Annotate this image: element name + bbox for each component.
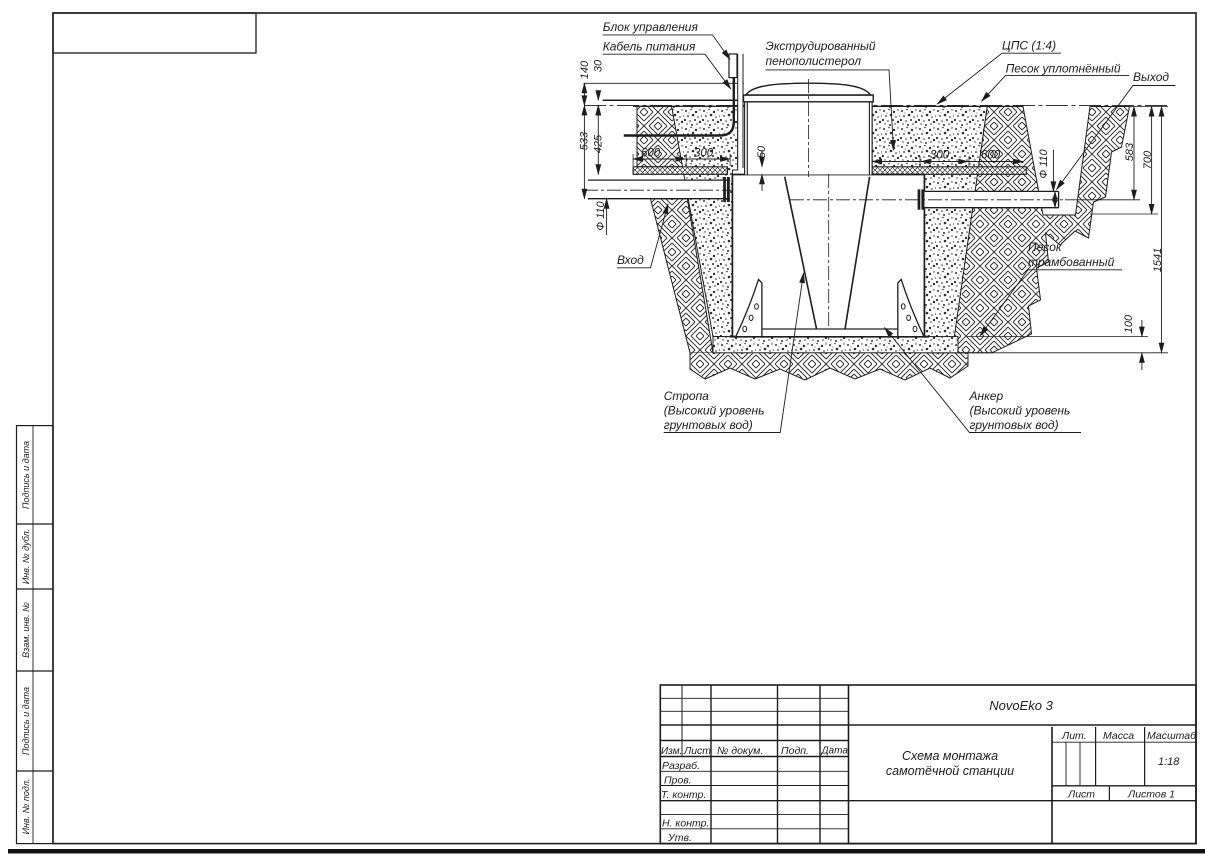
- svg-text:Блок управления: Блок управления: [603, 20, 699, 34]
- svg-text:30: 30: [593, 59, 605, 72]
- svg-text:Масштаб: Масштаб: [1147, 730, 1197, 742]
- svg-text:№ докум.: № докум.: [717, 745, 763, 757]
- svg-text:600: 600: [641, 148, 661, 160]
- svg-text:1:18: 1:18: [1158, 756, 1180, 768]
- svg-text:Инв. № дубл.: Инв. № дубл.: [21, 529, 31, 584]
- svg-text:300: 300: [694, 148, 714, 160]
- svg-text:NovoEko 3: NovoEko 3: [989, 698, 1053, 713]
- svg-text:Утв.: Утв.: [667, 832, 692, 844]
- svg-text:Дата: Дата: [821, 746, 849, 757]
- svg-text:самотёчной станции: самотёчной станции: [886, 764, 1014, 778]
- svg-text:425: 425: [593, 134, 605, 153]
- svg-text:(Высокий уровень: (Высокий уровень: [664, 404, 765, 418]
- svg-text:Ф 110: Ф 110: [1038, 148, 1050, 178]
- svg-text:700: 700: [1142, 150, 1154, 169]
- svg-text:Взам. инв. №: Взам. инв. №: [21, 602, 31, 658]
- svg-text:1541: 1541: [1152, 248, 1164, 272]
- svg-text:Схема монтажа: Схема монтажа: [902, 749, 998, 763]
- svg-text:Инв. № подл.: Инв. № подл.: [21, 779, 31, 835]
- svg-text:140: 140: [579, 60, 591, 79]
- svg-text:Кабель питания: Кабель питания: [603, 40, 696, 54]
- svg-text:грунтовых вод): грунтовых вод): [664, 418, 753, 432]
- svg-text:Подпись и дата: Подпись и дата: [21, 441, 31, 509]
- svg-text:300: 300: [930, 150, 950, 162]
- svg-text:Песок: Песок: [1028, 240, 1063, 254]
- svg-text:Экструдированный: Экструдированный: [766, 39, 876, 53]
- svg-text:Масса: Масса: [1103, 730, 1134, 742]
- svg-text:Подп.: Подп.: [781, 745, 809, 757]
- svg-text:Разраб.: Разраб.: [662, 760, 700, 772]
- svg-text:Подпись и дата: Подпись и дата: [21, 687, 31, 755]
- svg-text:Стропа: Стропа: [664, 389, 709, 403]
- svg-text:Т. контр.: Т. контр.: [661, 789, 706, 801]
- svg-text:Выход: Выход: [1133, 70, 1169, 84]
- svg-text:пенополистерол: пенополистерол: [766, 54, 862, 68]
- svg-text:100: 100: [1123, 314, 1135, 333]
- svg-text:Лист: Лист: [683, 745, 711, 757]
- svg-text:грунтовых вод): грунтовых вод): [970, 418, 1059, 432]
- svg-text:(Высокий уровень: (Высокий уровень: [970, 404, 1071, 418]
- svg-text:Песок уплотнённый: Песок уплотнённый: [1006, 62, 1121, 76]
- svg-text:Вход: Вход: [617, 253, 644, 267]
- svg-text:ЦПС (1:4): ЦПС (1:4): [1002, 39, 1056, 53]
- svg-text:Н. контр.: Н. контр.: [662, 818, 709, 830]
- svg-text:Лист: Лист: [1067, 789, 1095, 801]
- svg-text:Лит.: Лит.: [1061, 730, 1087, 742]
- svg-text:Ф 110: Ф 110: [595, 200, 607, 230]
- svg-text:Пров.: Пров.: [664, 775, 692, 787]
- svg-text:583: 583: [1124, 142, 1136, 161]
- svg-text:600: 600: [981, 150, 1001, 162]
- svg-text:Анкер: Анкер: [969, 389, 1004, 403]
- svg-text:533: 533: [579, 131, 591, 150]
- svg-text:Изм.: Изм.: [661, 746, 682, 757]
- svg-text:трамбованный: трамбованный: [1028, 255, 1115, 269]
- svg-text:50: 50: [756, 145, 768, 158]
- svg-text:Листов 1: Листов 1: [1127, 789, 1175, 801]
